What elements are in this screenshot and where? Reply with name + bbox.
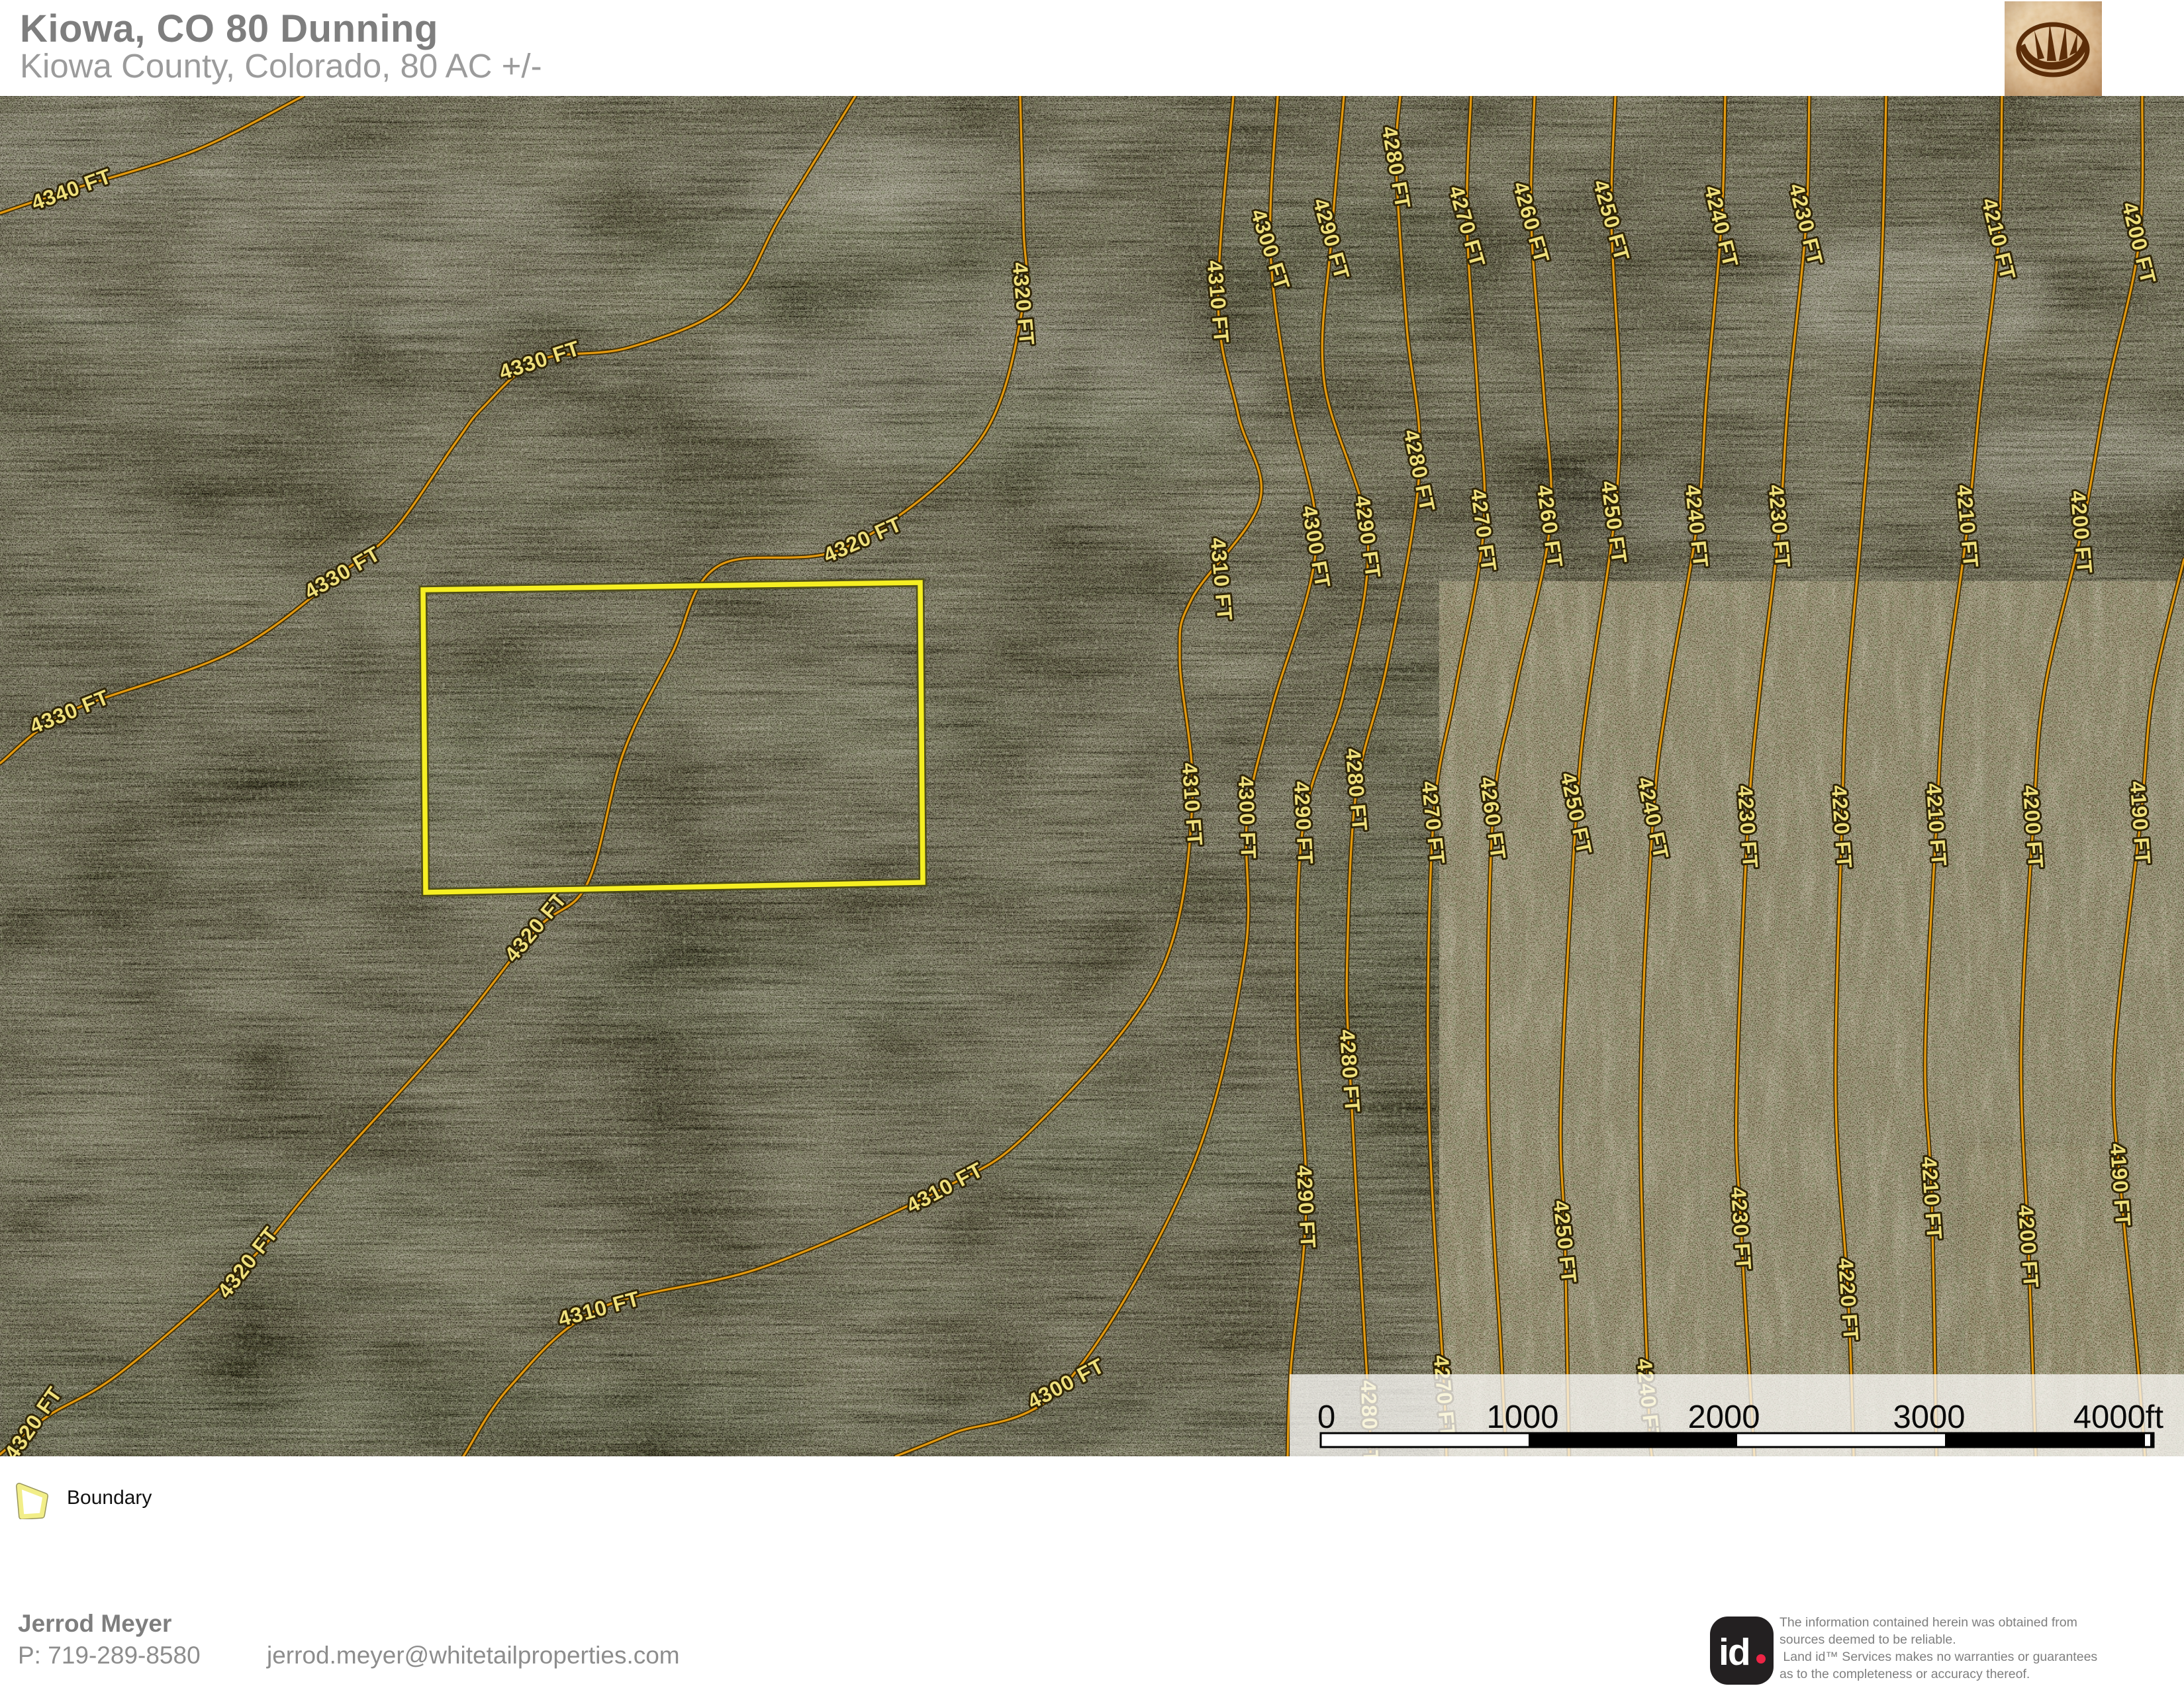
svg-text:0: 0 xyxy=(1317,1399,1335,1435)
svg-text:4290 FT: 4290 FT xyxy=(1290,780,1318,865)
svg-text:2000: 2000 xyxy=(1687,1399,1760,1435)
svg-text:id: id xyxy=(1719,1631,1750,1673)
svg-text:4290 FT: 4290 FT xyxy=(1292,1164,1321,1249)
svg-text:4000ft: 4000ft xyxy=(2073,1399,2164,1435)
svg-text:3000: 3000 xyxy=(1893,1399,1965,1435)
svg-text:1000: 1000 xyxy=(1486,1399,1558,1435)
svg-text:4300 FT: 4300 FT xyxy=(1234,775,1260,859)
